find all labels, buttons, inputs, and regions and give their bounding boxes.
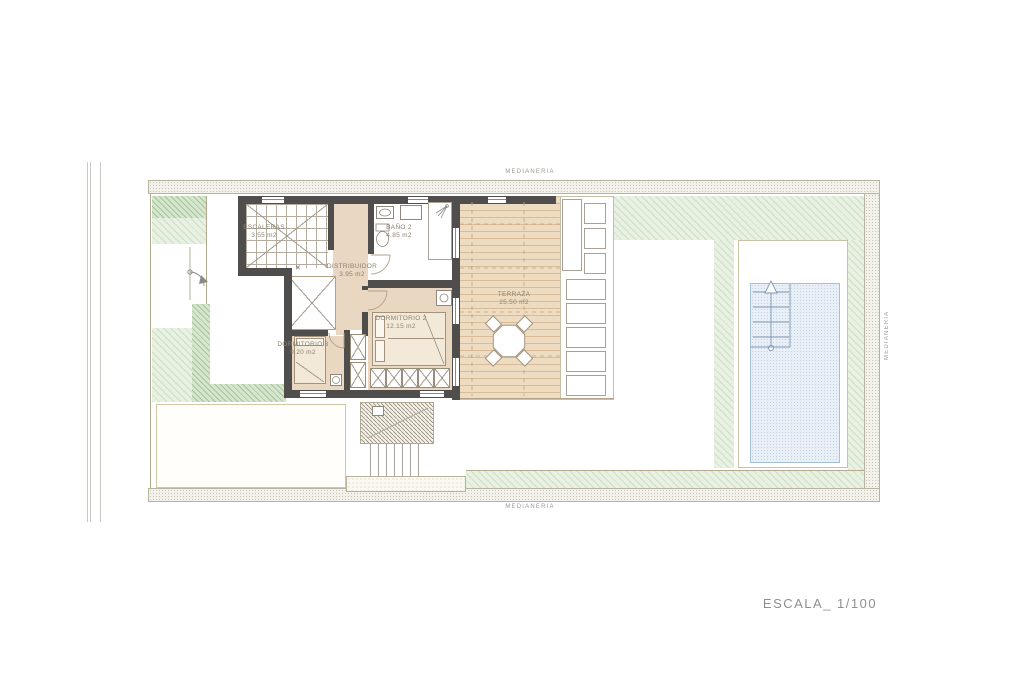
boundary-line-left bbox=[150, 194, 151, 488]
terrace-door bbox=[453, 298, 459, 324]
closet-cell bbox=[434, 368, 450, 388]
room-label-distribuidor: DISTRIBUIDOR 3.95 m2 bbox=[317, 263, 387, 280]
window bbox=[488, 197, 506, 203]
window bbox=[420, 391, 444, 397]
room-area: 3.95 m2 bbox=[317, 271, 387, 279]
wall bbox=[368, 280, 452, 288]
room-name: DORMITORIO 3 bbox=[268, 341, 338, 349]
room-area: 9.20 m2 bbox=[268, 349, 338, 357]
window bbox=[300, 391, 326, 397]
window bbox=[408, 197, 428, 203]
room-label-escaleras: ESCALERAS 3.55 m2 bbox=[229, 224, 299, 241]
room-name: TERRAZA bbox=[479, 291, 549, 299]
terrace-step bbox=[584, 228, 606, 249]
garden-strip-bottom bbox=[466, 470, 864, 488]
room-area: 25.50 m2 bbox=[479, 299, 549, 307]
terrace-step bbox=[566, 303, 606, 324]
closet-cell bbox=[350, 334, 366, 360]
boundary-band-right bbox=[864, 193, 880, 489]
room-name: ESCALERAS bbox=[229, 224, 299, 232]
floor-plan-canvas: MEDIANERIA MEDIANERIA MEDIANERIA bbox=[0, 0, 1024, 682]
stair-void bbox=[288, 276, 336, 330]
room-area: 3.55 m2 bbox=[229, 232, 299, 240]
scale-label: ESCALA_ 1/100 bbox=[745, 596, 895, 611]
terrace-planter bbox=[562, 199, 582, 271]
window bbox=[262, 197, 284, 203]
garden-patch bbox=[152, 328, 192, 402]
boundary-band-bottom bbox=[148, 488, 880, 502]
boundary-band-top bbox=[148, 180, 880, 194]
entrance-ramp bbox=[370, 444, 424, 476]
terrace-step bbox=[566, 327, 606, 348]
garden-patch bbox=[152, 218, 206, 244]
street-edge-line bbox=[87, 162, 88, 522]
doormat bbox=[372, 406, 384, 416]
room-area: 12.15 m2 bbox=[366, 323, 436, 331]
street-edge-line bbox=[90, 162, 91, 522]
boundary-label-right: MEDIANERIA bbox=[884, 300, 890, 370]
boundary-label-top: MEDIANERIA bbox=[480, 169, 580, 175]
room-area: 4.85 m2 bbox=[364, 232, 434, 240]
garden-patch bbox=[152, 196, 206, 218]
pillow bbox=[375, 340, 385, 362]
terrace-step bbox=[584, 253, 606, 274]
garden-strip-pool-left bbox=[714, 240, 734, 468]
wall bbox=[328, 204, 334, 250]
terrace-step bbox=[566, 375, 606, 396]
closet-cell bbox=[370, 368, 386, 388]
room-label-dormitorio-3: DORMITORIO 3 9.20 m2 bbox=[268, 341, 338, 358]
room-label-bano-2: BAÑO 2 4.85 m2 bbox=[364, 224, 434, 241]
boundary-label-bottom: MEDIANERIA bbox=[480, 504, 580, 510]
room-label-dormitorio-2: DORMITORIO 2 12.15 m2 bbox=[366, 315, 436, 332]
vanity-unit bbox=[400, 205, 422, 220]
garden-strip-pool-right bbox=[848, 240, 864, 470]
patio bbox=[156, 404, 346, 488]
nightstand bbox=[436, 290, 452, 306]
terrace-door bbox=[453, 358, 459, 386]
terrace-step bbox=[566, 351, 606, 372]
closet-cell bbox=[418, 368, 434, 388]
wall bbox=[238, 196, 556, 204]
terrace-step bbox=[566, 279, 606, 300]
sink bbox=[376, 206, 394, 219]
window bbox=[453, 228, 459, 258]
closet-cell bbox=[350, 362, 366, 388]
nightstand bbox=[330, 374, 342, 386]
garden-band-top-right bbox=[614, 196, 864, 240]
room-name: BAÑO 2 bbox=[364, 224, 434, 232]
garden-gate-icon bbox=[188, 247, 208, 300]
room-label-terraza: TERRAZA 25.50 m2 bbox=[479, 291, 549, 308]
swimming-pool bbox=[750, 283, 840, 463]
walkway bbox=[346, 476, 466, 492]
terrace-edge-line bbox=[456, 398, 614, 399]
room-name: DISTRIBUIDOR bbox=[317, 263, 387, 271]
closet-cell bbox=[402, 368, 418, 388]
terrace-step bbox=[584, 203, 606, 224]
closet-cell bbox=[386, 368, 402, 388]
wall bbox=[362, 286, 368, 290]
void-marker: ✕ bbox=[295, 264, 301, 272]
garden-strip-horizontal bbox=[192, 384, 286, 402]
street-edge-line bbox=[100, 162, 101, 522]
bed-corner-fold bbox=[296, 362, 324, 382]
room-name: DORMITORIO 2 bbox=[366, 315, 436, 323]
